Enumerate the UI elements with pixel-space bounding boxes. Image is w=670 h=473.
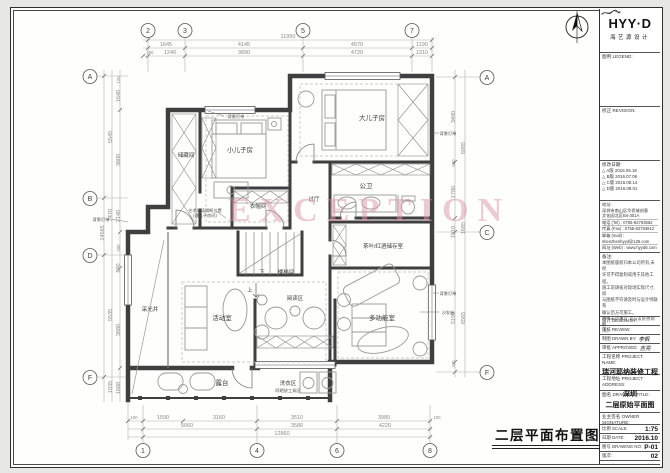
dim: 5060 bbox=[181, 423, 193, 429]
project-address-section: 工程地址 PROJECT ADDRESS: 深圳 bbox=[600, 375, 660, 391]
revision-date: △ D版 2016.09.01 bbox=[602, 186, 658, 192]
grid-right-a: A bbox=[485, 75, 490, 82]
approved-label: 审批 APPROVED: bbox=[602, 345, 638, 351]
room-elder-son: 大儿子房 bbox=[359, 113, 385, 122]
company-name: 海艺源设计 bbox=[602, 33, 658, 41]
grid-right-c: C bbox=[484, 230, 489, 237]
version-value: 02 bbox=[651, 453, 658, 460]
drawn-by-row: 制图 DRAWN BY: 李枫 bbox=[600, 335, 660, 344]
note-bg-light-4: 背景灯带 bbox=[440, 290, 457, 297]
dim: 100 bbox=[433, 415, 441, 420]
grid-left-d: D bbox=[87, 253, 92, 260]
project-address-label: 工程地址 PROJECT ADDRESS: bbox=[602, 376, 658, 387]
scale-label: 比例 SCALE: bbox=[602, 426, 628, 432]
room-laundry-note: 晾晒放工具区 bbox=[275, 387, 300, 394]
dates-section: 修改日期: △ A版 2016.06.18 △ B版 2016.07.06 △ … bbox=[600, 161, 660, 201]
date-row: 日期 DATE: 2016.10 bbox=[600, 434, 660, 443]
room-multi: 多功能室 bbox=[369, 313, 396, 322]
project-name-label: 工程名称 PROJECT NAME: bbox=[602, 354, 658, 365]
dim: 320 bbox=[451, 360, 456, 368]
fax-line: 传真 (Fax) : 0755-82793912 bbox=[602, 225, 658, 232]
room-young-son: 小儿子房 bbox=[227, 145, 253, 154]
web-line: 网址 (Web) : www.hyyd8.com bbox=[602, 244, 658, 251]
version-row: 版次: 02 bbox=[600, 452, 660, 461]
date-value: 2016.10 bbox=[635, 435, 659, 442]
grid-left-f: F bbox=[88, 375, 92, 382]
notes-section: 备注: 本图纸版权归本公司所有,未经 许可不得复制或用于其他工程。 施工前请核对… bbox=[600, 253, 660, 317]
dim: 1035 bbox=[108, 381, 114, 393]
grid-right-f: F bbox=[485, 370, 489, 377]
review-signature bbox=[600, 9, 622, 17]
dim: 14585 bbox=[100, 225, 106, 240]
grid-left-a: A bbox=[88, 74, 93, 81]
note-line: 许可不得复制或用于其他工程。 bbox=[602, 272, 658, 284]
drawn-by-label: 制图 DRAWN BY: bbox=[602, 336, 636, 342]
dim: 5535 bbox=[108, 309, 114, 321]
dim: 3580 bbox=[291, 423, 303, 429]
dim: 1240 bbox=[164, 50, 176, 56]
dim-top-total: 11950 bbox=[281, 34, 296, 40]
dim: 4220 bbox=[379, 423, 391, 429]
stair-down-label: 下 bbox=[259, 269, 265, 276]
grid-top-5: 5 bbox=[301, 28, 305, 35]
room-bath: 公卫 bbox=[360, 182, 374, 190]
legend-section: 图例 LEGEND: bbox=[600, 53, 660, 107]
drawing-no-row: 图号 DRAWING NO: P-01 bbox=[600, 443, 660, 452]
room-activity: 活动室 bbox=[212, 313, 232, 322]
dim: 6565 bbox=[461, 312, 467, 324]
watermark-text: EXCEPTION bbox=[228, 192, 511, 230]
dim: 12860 bbox=[274, 431, 289, 437]
dim: 3980 bbox=[378, 415, 390, 421]
owner-signature-section: 业主签名 OWNER SIGNATURE: bbox=[600, 413, 660, 425]
drawn-by-value: 李枫 bbox=[638, 335, 649, 343]
dim: 180 bbox=[146, 50, 154, 55]
note-line: 决。 bbox=[602, 328, 658, 334]
owner-signature-label: 业主签名 OWNER SIGNATURE: bbox=[602, 414, 658, 425]
note-bg-light-2: 背景灯带 bbox=[93, 216, 110, 223]
dim: 3880 bbox=[116, 324, 122, 336]
dim: 100 bbox=[130, 415, 138, 420]
title-block: HYY·D 海艺源设计 图例 LEGEND: 修正 REVISION: 修改日期… bbox=[599, 9, 660, 464]
dim: 4145 bbox=[238, 42, 250, 48]
drawing-sheet: 2 3 5 7 1 4 6 8 A B D F A C F 11950 1645… bbox=[0, 0, 670, 473]
light-well-diagonal bbox=[132, 240, 164, 394]
floor-plan: 2 3 5 7 1 4 6 8 A B D F A C F 11950 1645… bbox=[0, 0, 670, 473]
room-tea-wine: 茶叶/红酒储存室 bbox=[363, 242, 404, 250]
version-label: 版次: bbox=[602, 453, 612, 459]
scale-row: 比例 SCALE: 1:75 bbox=[600, 425, 660, 434]
north-arrow-icon bbox=[566, 11, 588, 43]
dim: 1190 bbox=[416, 42, 428, 48]
grid-bottom-6: 6 bbox=[335, 448, 339, 455]
note-bg-light-1: 背景灯带 bbox=[228, 113, 245, 120]
dim: 3510 bbox=[291, 415, 303, 421]
plan-title: 二层平面布置图 bbox=[492, 424, 603, 449]
note-line: 施工前请核对现场实际尺寸,如 bbox=[602, 285, 658, 297]
room-storage: 储藏间 bbox=[178, 151, 195, 159]
revision-label: 修正 REVISION: bbox=[602, 108, 658, 114]
grid-bottom-4: 4 bbox=[255, 448, 259, 455]
drawing-no-value: P-01 bbox=[644, 444, 658, 451]
room-laundry: 洗衣区 bbox=[280, 379, 297, 387]
dim: 5545 bbox=[108, 131, 114, 143]
revision-section: 修正 REVISION: bbox=[600, 107, 660, 161]
mail-line: 邮箱 (mail) : shenzhenhyyd@126.com bbox=[602, 232, 658, 244]
note-line: 与图纸不符请及时与设计师联系 bbox=[602, 297, 658, 309]
grid-left-b: B bbox=[88, 196, 93, 203]
room-terrace: 露台 bbox=[216, 378, 229, 387]
dim: 200 bbox=[116, 244, 121, 252]
approved-value: 吉亮 bbox=[640, 344, 651, 352]
drawing-title-value: 二层原始平面图 bbox=[602, 400, 658, 410]
phone-line: 电话 (Tel) : 0755-82793562 bbox=[602, 219, 658, 226]
company-logo: HYY·D bbox=[602, 16, 658, 31]
room-light-well: 采光井 bbox=[142, 305, 159, 313]
grid-top-2: 2 bbox=[146, 28, 150, 35]
note-sofa-bed: 沙发床 bbox=[442, 309, 455, 316]
date-label: 日期 DATE: bbox=[602, 435, 625, 441]
dim: 3800 bbox=[116, 154, 122, 166]
dim: 1688 bbox=[116, 382, 122, 394]
note-line: 本图纸版权归本公司所有,未经 bbox=[602, 260, 658, 272]
dimension-ticks bbox=[102, 38, 457, 439]
dim: 6985 bbox=[461, 142, 467, 154]
dim: 1310 bbox=[416, 50, 428, 56]
note-art-glass-2: (通儿子房间) bbox=[193, 212, 217, 219]
project-name-section: 工程名称 PROJECT NAME: 瑞河耶纳装修工程 bbox=[600, 353, 660, 375]
dim: 120 bbox=[116, 76, 121, 84]
room-stair: 楼梯间 bbox=[278, 268, 295, 276]
dim: 4720 bbox=[351, 50, 363, 56]
dimension-labels: 11950 1645 4145 4970 1190 180 1240 3890 … bbox=[100, 34, 467, 437]
dim: 3160 bbox=[213, 415, 225, 421]
dim: 1640 bbox=[116, 90, 122, 102]
dim: 600 bbox=[451, 159, 456, 167]
grid-top-3: 3 bbox=[183, 28, 187, 35]
room-reading: 阅读区 bbox=[287, 294, 304, 302]
dim: 1590 bbox=[157, 415, 169, 421]
approved-row: 审批 APPROVED: 吉亮 bbox=[600, 344, 660, 353]
dim: 890 bbox=[116, 263, 122, 272]
stair-up-label: 上 bbox=[247, 286, 253, 294]
drawing-no-label: 图号 DRAWING NO: bbox=[602, 444, 642, 450]
grid-bottom-1: 1 bbox=[141, 448, 145, 455]
contact-section: 地址: 深圳市南山区华侨城创意 文化园北区B4-301A 电话 (Tel) : … bbox=[600, 201, 660, 253]
note-bg-light-3: 背景灯带 bbox=[440, 130, 457, 137]
scale-value: 1:75 bbox=[645, 426, 658, 433]
dim: 4970 bbox=[351, 42, 363, 48]
drawing-title-label: 图名 DRAWING TITLE: bbox=[602, 392, 658, 398]
grid-bottom-8: 8 bbox=[428, 448, 432, 455]
legend-label: 图例 LEGEND: bbox=[602, 54, 658, 60]
dim: 3890 bbox=[238, 50, 250, 56]
grid-top-7: 7 bbox=[410, 28, 414, 35]
drawing-title-section: 图名 DRAWING TITLE: 二层原始平面图 bbox=[600, 391, 660, 413]
dim: 2140 bbox=[116, 210, 122, 222]
dim: 1645 bbox=[160, 42, 172, 48]
note-line: 图中未尽事宜,双方友好协商解 bbox=[602, 316, 658, 328]
dim: 3490 bbox=[451, 111, 457, 123]
